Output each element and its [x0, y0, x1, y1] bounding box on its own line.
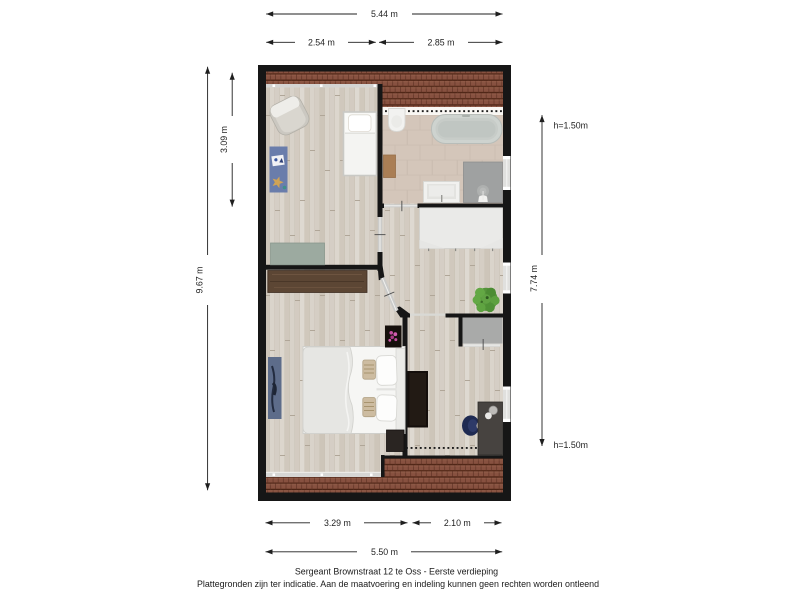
svg-text:h=1.50m: h=1.50m — [554, 120, 588, 130]
svg-text:Sergeant Brownstraat 12 te Oss: Sergeant Brownstraat 12 te Oss - Eerste … — [295, 567, 498, 577]
svg-text:h=1.50m: h=1.50m — [554, 440, 588, 450]
svg-text:2.85 m: 2.85 m — [428, 38, 455, 48]
svg-text:3.09 m: 3.09 m — [219, 126, 229, 153]
svg-text:5.44 m: 5.44 m — [371, 9, 398, 19]
svg-text:5.50 m: 5.50 m — [371, 547, 398, 557]
svg-text:9.67 m: 9.67 m — [195, 267, 205, 294]
svg-text:2.54 m: 2.54 m — [308, 38, 335, 48]
svg-text:3.29 m: 3.29 m — [324, 518, 351, 528]
svg-text:7.74 m: 7.74 m — [529, 265, 539, 292]
svg-text:2.10 m: 2.10 m — [444, 518, 471, 528]
svg-text:Plattegronden zijn ter indicat: Plattegronden zijn ter indicatie. Aan de… — [197, 579, 599, 589]
